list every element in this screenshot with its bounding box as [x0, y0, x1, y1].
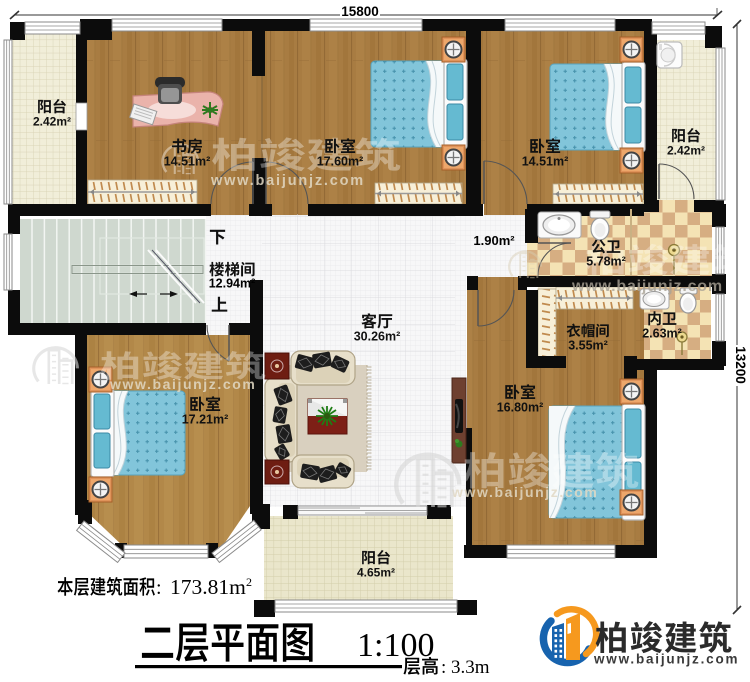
svg-text:: 3.3m: : 3.3m — [441, 657, 490, 678]
svg-text:1.90m²: 1.90m² — [473, 233, 515, 248]
svg-text:2.42m²: 2.42m² — [33, 115, 71, 129]
svg-text:www.baijunjz.com: www.baijunjz.com — [571, 278, 723, 295]
svg-text:13200: 13200 — [733, 346, 748, 384]
svg-text:3.55m²: 3.55m² — [568, 339, 608, 353]
svg-text:www.baijunjz.com: www.baijunjz.com — [593, 652, 739, 667]
svg-text:5.78m²: 5.78m² — [586, 255, 626, 269]
svg-text:4.65m²: 4.65m² — [357, 566, 395, 580]
svg-text:14.51m²: 14.51m² — [164, 155, 211, 169]
svg-text:2.63m²: 2.63m² — [642, 327, 682, 341]
svg-text:15800: 15800 — [341, 4, 379, 19]
svg-text:16.80m²: 16.80m² — [497, 401, 544, 415]
svg-text:1:100: 1:100 — [357, 627, 434, 664]
svg-text:www.baijunjz.com: www.baijunjz.com — [109, 376, 256, 392]
svg-text::: : — [156, 577, 162, 599]
svg-text:www.baijunjz.com: www.baijunjz.com — [210, 173, 365, 189]
svg-text:2.42m²: 2.42m² — [667, 144, 705, 158]
svg-text:12.94m²: 12.94m² — [209, 277, 256, 291]
svg-text:17.21m²: 17.21m² — [182, 413, 229, 427]
svg-text:17.60m²: 17.60m² — [317, 155, 364, 169]
svg-text:2: 2 — [246, 575, 252, 589]
svg-text:www.baijunjz.com: www.baijunjz.com — [451, 484, 598, 500]
svg-text:30.26m²: 30.26m² — [354, 330, 401, 344]
svg-text:173.81m: 173.81m — [170, 575, 246, 599]
svg-text:14.51m²: 14.51m² — [522, 155, 569, 169]
